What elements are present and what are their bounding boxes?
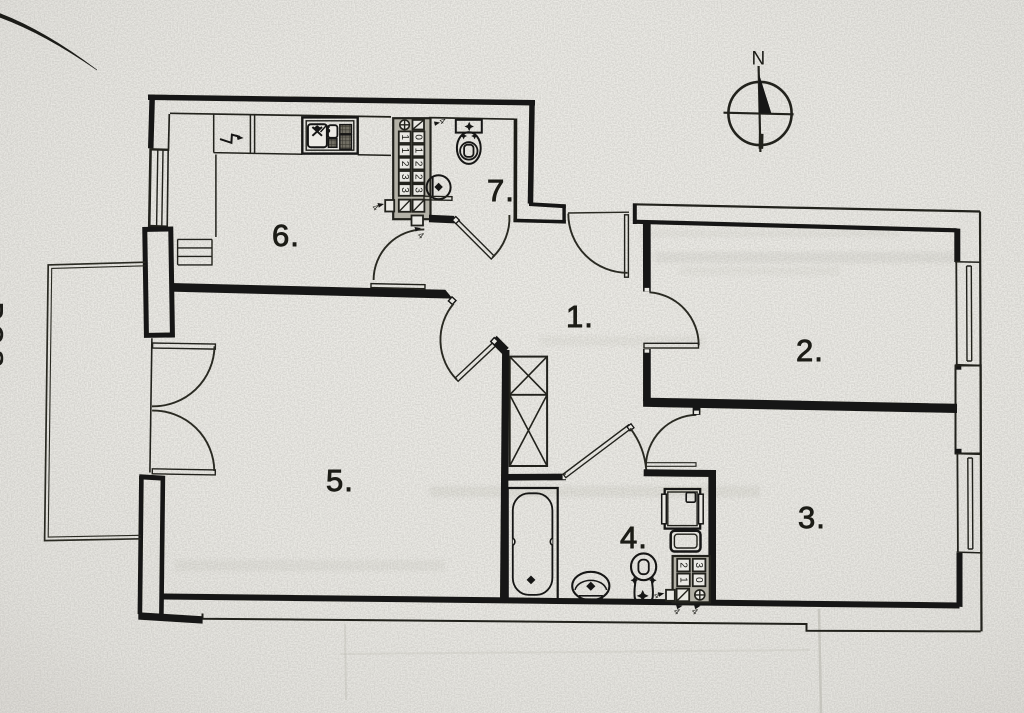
- svg-text:2: 2: [399, 161, 410, 167]
- svg-text:3: 3: [399, 174, 410, 180]
- svg-text:1: 1: [399, 148, 410, 154]
- svg-text:2: 2: [413, 161, 424, 167]
- svg-text:2.: 2.: [796, 333, 824, 368]
- svg-text:POS: POS: [0, 302, 9, 372]
- svg-text:1.: 1.: [566, 299, 594, 334]
- svg-text:6.: 6.: [272, 218, 300, 253]
- svg-text:7.: 7.: [487, 173, 515, 208]
- svg-text:5.: 5.: [326, 463, 354, 498]
- svg-text:3.: 3.: [798, 500, 826, 535]
- svg-text:1: 1: [678, 577, 689, 583]
- svg-text:N: N: [752, 49, 766, 70]
- svg-text:4.: 4.: [620, 520, 648, 555]
- svg-text:1: 1: [399, 134, 410, 140]
- svg-text:3: 3: [399, 187, 410, 193]
- svg-text:3: 3: [693, 562, 704, 568]
- svg-text:2: 2: [413, 174, 424, 180]
- svg-text:0: 0: [413, 134, 424, 140]
- svg-text:1: 1: [413, 148, 424, 154]
- svg-text:2: 2: [678, 562, 689, 568]
- svg-text:3: 3: [413, 187, 424, 193]
- svg-text:0: 0: [693, 577, 704, 583]
